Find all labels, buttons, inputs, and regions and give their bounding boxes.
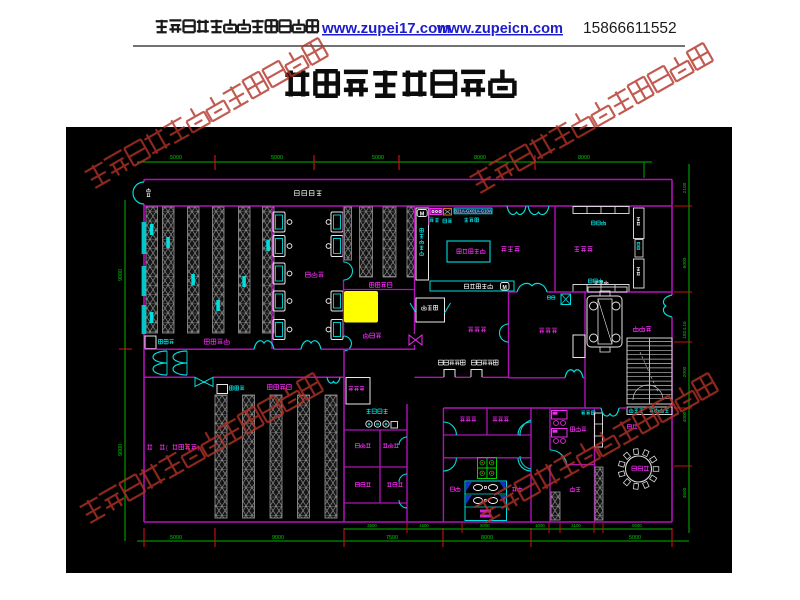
svg-text:4000: 4000 [682, 411, 688, 422]
svg-text:7500: 7500 [386, 535, 398, 541]
svg-text:15866611552: 15866611552 [583, 20, 677, 37]
svg-text:5000: 5000 [629, 535, 641, 541]
svg-text:www.zupei17.com: www.zupei17.com [321, 20, 451, 37]
svg-text:8000: 8000 [578, 155, 590, 161]
svg-text:8000: 8000 [474, 155, 486, 161]
svg-text:1824.16: 1824.16 [682, 321, 688, 339]
svg-text:9000: 9000 [118, 269, 124, 281]
svg-text:5000: 5000 [271, 155, 283, 161]
svg-text:1000: 1000 [535, 523, 545, 528]
svg-text:9000: 9000 [118, 444, 124, 456]
svg-text:1500: 1500 [419, 523, 429, 528]
svg-text:2000: 2000 [682, 366, 688, 377]
svg-text:5000: 5000 [632, 523, 642, 528]
svg-text:M: M [503, 285, 507, 291]
svg-text:B21A-GX01A-G10A: B21A-GX01A-G10A [454, 209, 491, 214]
svg-text:www.zupeicn.com: www.zupeicn.com [436, 21, 563, 37]
svg-text:2100: 2100 [571, 523, 581, 528]
svg-text:M: M [420, 212, 425, 218]
svg-text:5000: 5000 [170, 535, 182, 541]
svg-text:2500: 2500 [367, 523, 377, 528]
svg-text:8000: 8000 [480, 523, 490, 528]
svg-text:9000: 9000 [272, 535, 284, 541]
svg-text:(: ( [166, 445, 168, 451]
svg-text:5000: 5000 [170, 155, 182, 161]
svg-text:5000: 5000 [372, 155, 384, 161]
svg-text:2100: 2100 [682, 182, 688, 193]
svg-text:6000: 6000 [682, 257, 688, 268]
svg-text:4600: 4600 [682, 487, 688, 498]
svg-text:8000: 8000 [481, 535, 493, 541]
